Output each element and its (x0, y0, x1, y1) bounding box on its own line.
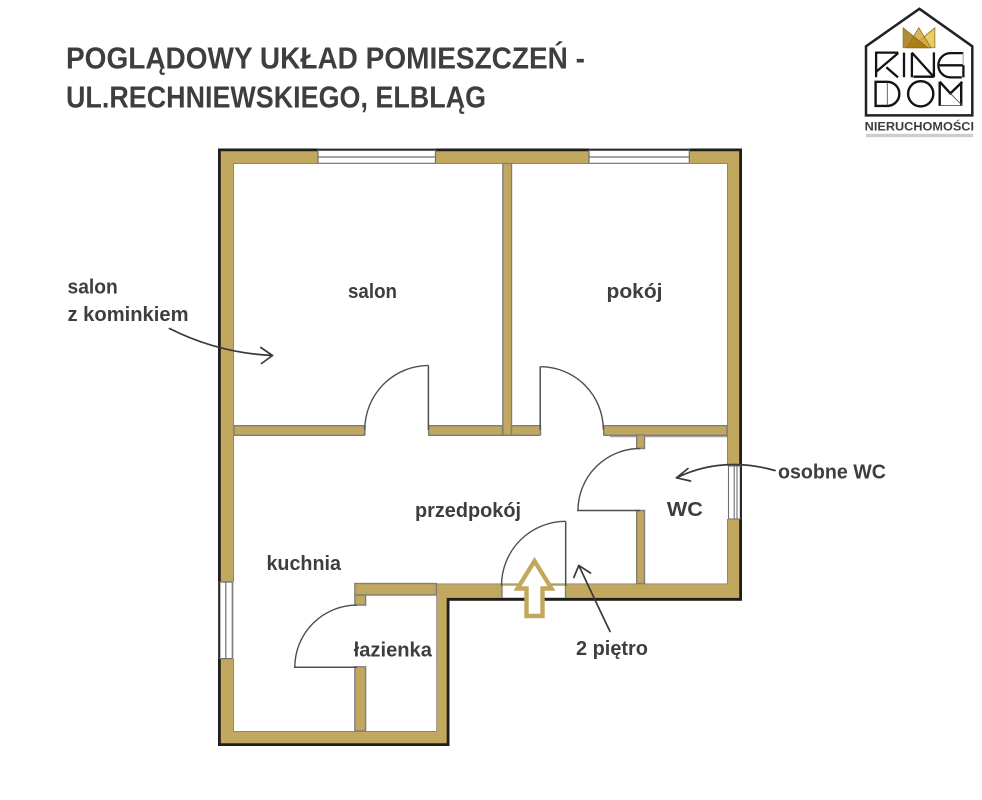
svg-text:2 piętro: 2 piętro (576, 638, 648, 660)
svg-text:NIERUCHOMOŚCI: NIERUCHOMOŚCI (865, 121, 974, 134)
svg-text:salon: salon (68, 277, 118, 299)
svg-text:UL.RECHNIEWSKIEGO, ELBLĄG: UL.RECHNIEWSKIEGO, ELBLĄG (66, 80, 486, 115)
svg-text:osobne WC: osobne WC (778, 462, 886, 484)
svg-text:pokój: pokój (607, 281, 663, 303)
svg-text:salon: salon (348, 281, 397, 303)
svg-text:POGLĄDOWY UKŁAD POMIESZCZEŃ -: POGLĄDOWY UKŁAD POMIESZCZEŃ - (66, 41, 585, 76)
svg-text:z kominkiem: z kominkiem (68, 304, 189, 326)
svg-text:łazienka: łazienka (354, 640, 433, 662)
svg-text:przedpokój: przedpokój (415, 500, 521, 522)
svg-text:WC: WC (667, 499, 703, 521)
svg-text:kuchnia: kuchnia (266, 553, 341, 575)
